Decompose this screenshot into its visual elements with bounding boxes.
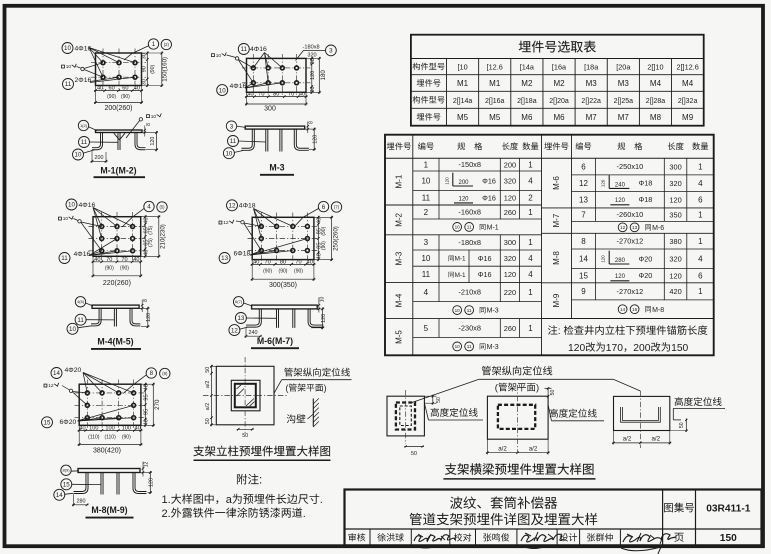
svg-text:a/2: a/2 — [205, 381, 211, 389]
svg-text:-160x8: -160x8 — [458, 208, 481, 217]
svg-text:15: 15 — [63, 482, 70, 489]
svg-text:120: 120 — [669, 271, 681, 280]
svg-text:M4: M4 — [650, 79, 662, 88]
svg-text:M3: M3 — [618, 79, 630, 88]
svg-text:1: 1 — [698, 237, 703, 246]
svg-text:12: 12 — [144, 462, 150, 468]
svg-text:M-9: M-9 — [552, 293, 561, 307]
svg-text:1.: 1. — [162, 494, 171, 506]
svg-text:95: 95 — [144, 394, 150, 400]
svg-text:7: 7 — [581, 210, 586, 219]
svg-text:120: 120 — [444, 177, 449, 185]
svg-text:14: 14 — [53, 370, 60, 377]
svg-text:40: 40 — [144, 384, 150, 390]
svg-text:(: ( — [286, 383, 289, 393]
svg-text:Φ16: Φ16 — [77, 251, 90, 258]
svg-text:270: 270 — [154, 399, 161, 410]
svg-text:-210x8: -210x8 — [458, 288, 481, 297]
svg-text:300: 300 — [264, 106, 276, 113]
svg-text:14: 14 — [620, 307, 626, 312]
svg-text:-270x12: -270x12 — [617, 287, 644, 296]
svg-text:380(420): 380(420) — [93, 448, 121, 455]
svg-text:-250x10: -250x10 — [617, 162, 644, 171]
svg-text:a/2: a/2 — [498, 446, 507, 453]
svg-text:Φ16: Φ16 — [78, 77, 91, 84]
svg-text:12: 12 — [48, 383, 54, 389]
svg-text:-180x8: -180x8 — [458, 238, 481, 247]
svg-text:8: 8 — [143, 299, 149, 302]
svg-text:14: 14 — [579, 255, 588, 264]
svg-text:M-1: M-1 — [455, 256, 466, 263]
svg-text:120: 120 — [615, 198, 626, 204]
svg-text:200: 200 — [633, 343, 650, 354]
svg-text:2[]14a: 2[]14a — [453, 98, 473, 105]
svg-text:2[]12.6: 2[]12.6 — [676, 63, 698, 72]
svg-text:(2): (2) — [164, 42, 170, 47]
svg-text:60: 60 — [122, 86, 128, 92]
svg-text:Φ20: Φ20 — [68, 367, 81, 374]
svg-text:120: 120 — [568, 343, 585, 354]
svg-text:350: 350 — [669, 210, 681, 219]
svg-text:220: 220 — [504, 288, 516, 297]
svg-text:M1: M1 — [457, 79, 469, 88]
svg-text:(5): (5) — [159, 205, 165, 210]
svg-text::: : — [558, 326, 561, 337]
svg-text:Φ16: Φ16 — [233, 83, 246, 90]
svg-text:200: 200 — [458, 180, 469, 186]
svg-text:4: 4 — [698, 255, 703, 264]
svg-text:10: 10 — [68, 202, 75, 209]
svg-text:50: 50 — [411, 451, 417, 457]
svg-text:40: 40 — [144, 217, 150, 223]
svg-text:1: 1 — [424, 160, 429, 169]
svg-text:M8: M8 — [650, 113, 662, 122]
svg-text:a/2: a/2 — [651, 436, 660, 443]
svg-text:11: 11 — [467, 308, 472, 313]
svg-text:10: 10 — [216, 53, 222, 59]
svg-text:2[]18a: 2[]18a — [517, 98, 537, 105]
svg-text:70: 70 — [264, 259, 270, 265]
svg-text:70: 70 — [288, 92, 294, 98]
svg-text:M2: M2 — [553, 79, 565, 88]
svg-text:(75): (75) — [148, 238, 154, 247]
svg-text:10: 10 — [63, 216, 69, 222]
svg-text:(90): (90) — [120, 265, 129, 271]
svg-text:10: 10 — [421, 254, 430, 263]
svg-text:M4: M4 — [682, 79, 694, 88]
svg-text:11: 11 — [422, 270, 431, 279]
svg-text:80: 80 — [280, 259, 286, 265]
svg-text:100: 100 — [89, 425, 98, 431]
svg-text:280: 280 — [77, 499, 86, 505]
svg-text:M-1: M-1 — [455, 272, 466, 279]
svg-text:M-7: M-7 — [552, 213, 561, 227]
svg-text:(90): (90) — [263, 268, 272, 274]
svg-text:4: 4 — [528, 270, 533, 279]
svg-text:(75): (75) — [148, 226, 154, 235]
svg-text:320: 320 — [504, 177, 516, 186]
svg-text:320: 320 — [504, 254, 516, 263]
svg-text:95: 95 — [144, 409, 150, 415]
svg-text:70: 70 — [106, 257, 112, 263]
svg-text:40: 40 — [299, 92, 305, 98]
svg-text:320: 320 — [669, 179, 681, 188]
svg-text:(90): (90) — [321, 226, 327, 235]
svg-text:M-8(M-9): M-8(M-9) — [91, 505, 127, 515]
svg-text:2: 2 — [424, 208, 429, 217]
svg-text:M-1(M-2): M-1(M-2) — [100, 165, 136, 175]
svg-text:60: 60 — [108, 86, 114, 92]
svg-text:M3: M3 — [586, 79, 598, 88]
svg-text:2[]28a: 2[]28a — [646, 98, 666, 105]
svg-text:150: 150 — [671, 343, 688, 354]
svg-text:1: 1 — [698, 162, 703, 171]
svg-text:(90): (90) — [321, 241, 327, 250]
svg-text:70: 70 — [258, 92, 264, 98]
svg-text:120: 120 — [321, 314, 327, 323]
svg-text:1: 1 — [528, 288, 533, 297]
svg-text:9: 9 — [581, 287, 586, 296]
svg-text:10: 10 — [455, 308, 461, 313]
svg-text:4: 4 — [147, 204, 151, 211]
svg-text:15: 15 — [579, 271, 588, 280]
svg-text:-180x8: -180x8 — [303, 44, 320, 50]
svg-text:200: 200 — [504, 160, 516, 169]
svg-text:a/2: a/2 — [205, 403, 211, 411]
svg-text:40: 40 — [307, 259, 313, 265]
svg-text:M7: M7 — [618, 113, 630, 122]
svg-text:11: 11 — [81, 139, 88, 146]
svg-text:260: 260 — [504, 324, 516, 333]
svg-text:4: 4 — [424, 288, 429, 297]
svg-text:(90): (90) — [107, 94, 116, 100]
svg-text:120: 120 — [615, 274, 626, 280]
svg-text:13: 13 — [579, 195, 588, 204]
svg-text:3: 3 — [329, 48, 333, 55]
svg-text:-150x8: -150x8 — [458, 160, 481, 169]
svg-text:8(9): 8(9) — [62, 468, 70, 473]
svg-text:30: 30 — [310, 58, 316, 64]
svg-text:4: 4 — [698, 179, 703, 188]
svg-text:M-5: M-5 — [395, 330, 404, 344]
svg-text:11: 11 — [61, 255, 68, 262]
svg-text:1: 1 — [698, 210, 703, 219]
svg-text:M5: M5 — [457, 113, 469, 122]
svg-text:30: 30 — [141, 79, 147, 85]
svg-text:380: 380 — [669, 237, 681, 246]
svg-text:150: 150 — [720, 533, 737, 544]
svg-text:50: 50 — [550, 390, 556, 396]
svg-text:10: 10 — [151, 114, 157, 120]
svg-text:(7): (7) — [334, 205, 340, 210]
svg-text:Φ18: Φ18 — [639, 179, 653, 188]
svg-text:6: 6 — [581, 162, 586, 171]
svg-text:120: 120 — [669, 195, 681, 204]
svg-text:M-2: M-2 — [395, 212, 404, 226]
svg-text:(90): (90) — [122, 435, 131, 441]
svg-text:M-1: M-1 — [487, 225, 499, 232]
svg-text:220(260): 220(260) — [103, 280, 131, 287]
svg-text:M-3: M-3 — [487, 308, 499, 315]
svg-text:70: 70 — [295, 259, 301, 265]
svg-text:80: 80 — [273, 92, 279, 98]
svg-text:-230x8: -230x8 — [458, 324, 481, 333]
svg-text:Φ16: Φ16 — [254, 46, 267, 53]
svg-text:10: 10 — [455, 225, 461, 230]
svg-text:210(230): 210(230) — [160, 224, 167, 249]
svg-text:4(5): 4(5) — [77, 299, 85, 304]
svg-text:120: 120 — [146, 313, 152, 322]
svg-text:40: 40 — [317, 253, 323, 259]
svg-text:280: 280 — [615, 258, 626, 264]
svg-text:10: 10 — [64, 45, 71, 52]
svg-text:8: 8 — [581, 237, 586, 246]
svg-text:200(260): 200(260) — [104, 105, 132, 112]
svg-text:300: 300 — [504, 238, 516, 247]
svg-text:1: 1 — [528, 238, 533, 247]
svg-text:6: 6 — [322, 204, 326, 211]
svg-text:120: 120 — [310, 71, 316, 80]
svg-text:6: 6 — [698, 271, 703, 280]
svg-text:240: 240 — [615, 182, 626, 188]
svg-text:90: 90 — [141, 66, 147, 72]
svg-text:30: 30 — [141, 53, 147, 59]
svg-text:4: 4 — [528, 254, 533, 263]
svg-text:2[]25a: 2[]25a — [614, 98, 634, 105]
svg-text:1: 1 — [528, 208, 533, 217]
svg-text:120: 120 — [150, 137, 156, 146]
svg-text:12: 12 — [620, 225, 626, 230]
svg-text:120: 120 — [601, 179, 606, 187]
svg-text:M9: M9 — [682, 113, 694, 122]
svg-text:14: 14 — [56, 492, 63, 499]
svg-text:2[]10: 2[]10 — [647, 63, 663, 72]
svg-text::: : — [259, 475, 262, 487]
svg-text:50: 50 — [205, 418, 211, 424]
svg-text:Φ16: Φ16 — [478, 270, 492, 279]
svg-text:3: 3 — [424, 238, 429, 247]
svg-text:10: 10 — [66, 64, 72, 70]
svg-text:12: 12 — [231, 327, 238, 334]
svg-text:10: 10 — [75, 152, 82, 159]
svg-text:a: a — [226, 494, 233, 506]
svg-text:11: 11 — [230, 138, 237, 145]
svg-text:.: . — [320, 494, 323, 506]
svg-text:8: 8 — [150, 370, 154, 377]
svg-text:40: 40 — [144, 249, 150, 255]
svg-text:[10: [10 — [457, 63, 467, 72]
svg-text:10: 10 — [319, 297, 325, 303]
svg-text:Φ16: Φ16 — [482, 176, 496, 185]
svg-text:11: 11 — [467, 225, 472, 230]
svg-text:8: 8 — [309, 121, 315, 124]
svg-text:Φ20: Φ20 — [639, 271, 653, 280]
svg-text:10: 10 — [225, 150, 232, 157]
svg-text:(90): (90) — [105, 265, 114, 271]
svg-text:M-1: M-1 — [395, 174, 404, 188]
svg-text:120: 120 — [504, 194, 516, 203]
svg-text:70: 70 — [121, 257, 127, 263]
svg-text:11: 11 — [467, 344, 472, 349]
svg-text:120: 120 — [149, 478, 155, 487]
svg-text:2: 2 — [528, 194, 533, 203]
svg-text:M-4: M-4 — [395, 293, 404, 307]
svg-text:1: 1 — [528, 160, 533, 169]
svg-text:100: 100 — [105, 425, 114, 431]
svg-text:320: 320 — [669, 255, 681, 264]
svg-text:Φ20: Φ20 — [639, 254, 653, 263]
svg-text:50: 50 — [242, 433, 248, 439]
svg-text:2.: 2. — [162, 508, 171, 520]
svg-text:2[]16a: 2[]16a — [485, 98, 505, 105]
svg-text:[18a: [18a — [584, 63, 599, 72]
svg-text:420: 420 — [669, 287, 681, 296]
svg-text:(90): (90) — [279, 268, 288, 274]
svg-text:50: 50 — [436, 397, 442, 403]
svg-text:10: 10 — [421, 177, 430, 186]
svg-text:40: 40 — [97, 86, 103, 92]
svg-text:250(260): 250(260) — [332, 226, 339, 251]
svg-text:[20a: [20a — [616, 63, 631, 72]
svg-text:-260x10: -260x10 — [617, 210, 644, 219]
svg-text:2[]22a: 2[]22a — [581, 98, 601, 105]
svg-text:300: 300 — [669, 162, 681, 171]
svg-text:[16a: [16a — [552, 63, 567, 72]
svg-text:4: 4 — [528, 177, 533, 186]
svg-text:2[]32a: 2[]32a — [678, 98, 698, 105]
svg-text:13: 13 — [632, 225, 638, 230]
svg-text:8: 8 — [146, 123, 152, 126]
svg-text:180: 180 — [320, 70, 327, 81]
svg-text:1: 1 — [698, 287, 703, 296]
svg-text:Φ16: Φ16 — [482, 193, 496, 202]
svg-text:40: 40 — [247, 92, 253, 98]
svg-text:150(160): 150(160) — [162, 57, 169, 82]
svg-text:): ) — [324, 383, 327, 393]
svg-text:11: 11 — [422, 194, 431, 203]
svg-text:15: 15 — [44, 420, 51, 427]
svg-text:[12.6: [12.6 — [487, 63, 503, 72]
svg-text:a/2: a/2 — [623, 436, 632, 443]
svg-text:6(7): 6(7) — [235, 299, 243, 304]
svg-text:10: 10 — [219, 87, 226, 94]
svg-text:11: 11 — [77, 317, 84, 324]
svg-text:120: 120 — [458, 196, 469, 202]
svg-text:[14a: [14a — [520, 63, 535, 72]
svg-text:Φ20: Φ20 — [63, 419, 76, 426]
svg-text:10: 10 — [455, 344, 461, 349]
svg-text:(110): (110) — [88, 435, 100, 441]
svg-text:Φ18: Φ18 — [639, 195, 653, 204]
svg-text:M1: M1 — [489, 79, 501, 88]
svg-text:50: 50 — [205, 367, 211, 373]
svg-text:13: 13 — [221, 255, 228, 262]
svg-text:M-3: M-3 — [395, 251, 404, 265]
svg-text:30: 30 — [310, 86, 316, 92]
svg-text:15: 15 — [632, 307, 638, 312]
svg-text:): ) — [536, 383, 539, 394]
svg-text:(9): (9) — [162, 371, 168, 376]
svg-text:10: 10 — [69, 326, 76, 333]
svg-text:M6: M6 — [553, 113, 565, 122]
svg-text:M-8: M-8 — [552, 251, 561, 265]
svg-text:a/2: a/2 — [529, 446, 538, 453]
svg-text:Φ16: Φ16 — [478, 254, 492, 263]
svg-text:11: 11 — [65, 81, 72, 88]
svg-text:03R411-1: 03R411-1 — [706, 504, 751, 515]
svg-text:.: . — [303, 508, 306, 520]
svg-text:13: 13 — [237, 315, 244, 322]
svg-text:M-6(M-7): M-6(M-7) — [257, 336, 293, 346]
svg-text:170: 170 — [606, 343, 623, 354]
svg-text:(90): (90) — [121, 94, 130, 100]
svg-text:(110): (110) — [104, 435, 116, 441]
svg-text:40: 40 — [253, 259, 259, 265]
svg-text:40: 40 — [79, 425, 85, 431]
svg-text:2[]20a: 2[]20a — [549, 98, 569, 105]
svg-text:120: 120 — [504, 270, 516, 279]
svg-text:M6: M6 — [521, 113, 533, 122]
svg-text:1: 1 — [528, 324, 533, 333]
svg-text:300(350): 300(350) — [269, 282, 297, 289]
svg-text:3: 3 — [230, 123, 234, 130]
svg-text:1: 1 — [152, 41, 156, 48]
svg-text:40: 40 — [133, 257, 139, 263]
svg-text:40: 40 — [134, 86, 140, 92]
svg-text:Φ18: Φ18 — [237, 251, 250, 258]
svg-text:M-6: M-6 — [552, 176, 561, 190]
svg-text:(90): (90) — [294, 268, 303, 274]
svg-text:M-8: M-8 — [652, 307, 664, 314]
svg-text:40: 40 — [135, 425, 141, 431]
svg-text:(90): (90) — [150, 65, 156, 74]
svg-text:M-3: M-3 — [487, 344, 499, 351]
svg-text:1(2): 1(2) — [80, 123, 88, 128]
svg-text:260: 260 — [504, 208, 516, 217]
svg-text:M7: M7 — [586, 113, 598, 122]
svg-text:M-3: M-3 — [269, 162, 284, 172]
svg-text:6: 6 — [698, 195, 703, 204]
svg-text:40: 40 — [94, 257, 100, 263]
svg-text:120: 120 — [601, 255, 606, 263]
svg-text:M2: M2 — [521, 79, 533, 88]
svg-text:12: 12 — [579, 179, 588, 188]
svg-text:50: 50 — [679, 422, 685, 428]
svg-text:M5: M5 — [489, 113, 501, 122]
svg-text:11: 11 — [241, 46, 248, 53]
svg-text:120: 120 — [313, 135, 319, 144]
svg-text:100: 100 — [122, 425, 131, 431]
svg-text:12: 12 — [223, 220, 229, 226]
svg-text:M-4(M-5): M-4(M-5) — [97, 336, 133, 346]
svg-text:M-6: M-6 — [652, 225, 664, 232]
svg-text:5: 5 — [424, 324, 429, 333]
svg-text:40: 40 — [317, 218, 323, 224]
svg-text:200: 200 — [95, 155, 104, 161]
svg-text:-270x12: -270x12 — [617, 237, 644, 246]
svg-text:12: 12 — [229, 203, 236, 210]
svg-text:40: 40 — [144, 419, 150, 425]
